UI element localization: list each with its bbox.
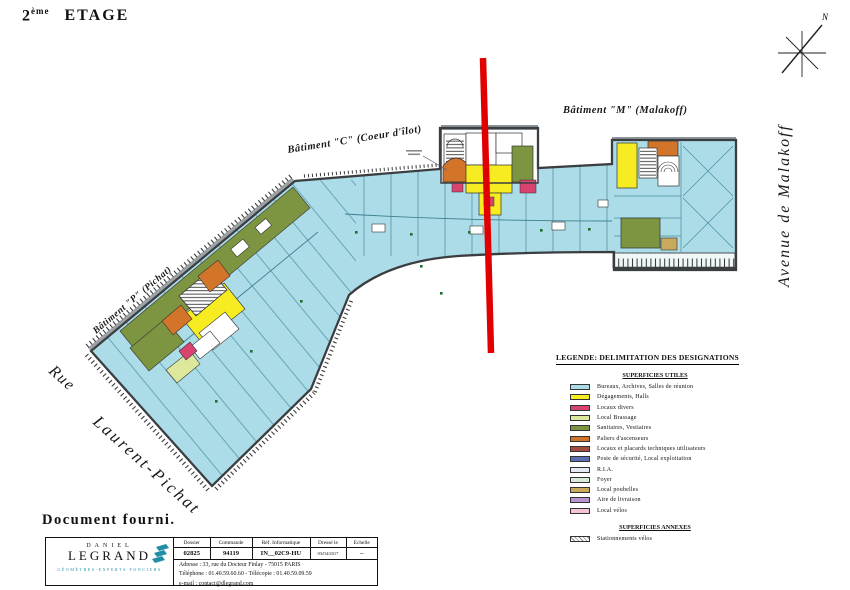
legend-item: Foyer — [570, 475, 796, 485]
legend-swatch — [570, 405, 590, 411]
legend-swatch — [570, 497, 590, 503]
legend-item: Poste de sécurité, Local exploitation — [570, 454, 796, 464]
legend-label: Stationnements vélos — [597, 536, 652, 542]
field-header: Dossier — [174, 538, 210, 548]
legend-swatch — [570, 487, 590, 493]
legend-swatch — [570, 436, 590, 442]
legend-section-annexes: SUPERFICIES ANNEXES — [590, 524, 720, 531]
field-value-commande: 94119 — [210, 548, 252, 560]
field-header: Echelle — [346, 538, 377, 548]
floorplan-page: { "title": {"num": "2", "sup": "ème", "r… — [0, 0, 850, 590]
legend-label: R.I.A. — [597, 467, 613, 473]
legend-swatch — [570, 446, 590, 452]
company-logo-icon — [150, 543, 170, 565]
legend-section-utiles: SUPERFICIES UTILES — [590, 372, 720, 379]
poubelles-m — [661, 238, 677, 250]
legend-item: Locaux divers — [570, 403, 796, 413]
legend-label: Locaux et placards techniques utilisateu… — [597, 446, 706, 452]
field-value-date: 03/04/2017 — [310, 548, 346, 560]
legend-label: Local vélos — [597, 508, 627, 514]
legend-label: Local poubelles — [597, 487, 638, 493]
legend-label: Paliers d'ascenseurs — [597, 436, 649, 442]
legend-items: Bureaux, Archives, Salles de réunionDéga… — [570, 382, 796, 516]
legend-swatch — [570, 384, 590, 390]
sanitaires-m — [621, 218, 660, 248]
company-address: Adresse : 33, rue du Docteur Finlay - 75… — [179, 561, 372, 570]
legend-item: Bureaux, Archives, Salles de réunion — [570, 382, 796, 392]
legend-item: Aire de livraison — [570, 495, 796, 505]
delimitation-red-line — [483, 58, 491, 353]
sanitaires-c — [512, 146, 533, 182]
legend-label: Sanitaires, Vestiaires — [597, 425, 651, 431]
hall-m — [617, 143, 637, 188]
compass-rose — [778, 25, 826, 77]
compass-north-label: N — [821, 12, 829, 22]
legend-item: R.I.A. — [570, 464, 796, 474]
company-email: e-mail : contact@dlegrand.com — [179, 580, 372, 589]
label-batiment-c: Bâtiment "C" (Coeur d'îlot) — [286, 124, 423, 156]
legend-swatch — [570, 508, 590, 514]
label-batiment-m: Bâtiment "M" (Malakoff) — [562, 105, 687, 116]
legend-swatch — [570, 394, 590, 400]
legend-swatch — [570, 415, 590, 421]
legend-item: Sanitaires, Vestiaires — [570, 423, 796, 433]
legend-item: Locaux et placards techniques utilisateu… — [570, 444, 796, 454]
title-block-info: Dossier Commande Réf. Informatique Dress… — [174, 538, 377, 585]
legend-label: Foyer — [597, 477, 612, 483]
legend-label: Local Brassage — [597, 415, 637, 421]
legend-item: Local vélos — [570, 506, 796, 516]
legend-title: LEGENDE: DELIMITATION DES DESIGNATIONS — [556, 353, 739, 365]
legend-item: Local Brassage — [570, 413, 796, 423]
title-block-table: Dossier Commande Réf. Informatique Dress… — [174, 538, 377, 560]
label-rue: Rue — [45, 362, 79, 395]
field-value-ref: IN__02C9-HU — [252, 548, 310, 560]
label-avenue-malakoff: Avenue de Malakoff — [776, 123, 793, 288]
legend-swatch — [570, 536, 590, 542]
legend-item: Local poubelles — [570, 485, 796, 495]
legend-label: Aire de livraison — [597, 497, 641, 503]
document-note: Document fourni. — [42, 512, 176, 529]
field-value-echelle: – — [346, 548, 377, 560]
legend-swatch — [570, 467, 590, 473]
legend-swatch — [570, 456, 590, 462]
legend-label: Dégagements, Halls — [597, 394, 649, 400]
legend-swatch — [570, 477, 590, 483]
legend-swatch — [570, 425, 590, 431]
company-phone: Téléphone : 01.40.59.60.60 - Télécopie :… — [179, 570, 372, 579]
legend-item: Paliers d'ascenseurs — [570, 433, 796, 443]
field-header: Réf. Informatique — [252, 538, 310, 548]
field-header: Dressé le — [310, 538, 346, 548]
company-tagline: GÉOMÈTRES-EXPERTS FONCIERS — [48, 567, 171, 572]
field-header: Commande — [210, 538, 252, 548]
legend-label: Poste de sécurité, Local exploitation — [597, 456, 692, 462]
company-logo-cell: DANIEL LEGRAND GÉOMÈTRES-EXPERTS FONCIER… — [46, 538, 174, 585]
legend: LEGENDE: DELIMITATION DES DESIGNATIONS S… — [556, 347, 796, 544]
legend-label: Locaux divers — [597, 405, 634, 411]
field-value-dossier: 02825 — [174, 548, 210, 560]
legend-annex-items: Stationnements vélos — [570, 534, 796, 544]
legend-label: Bureaux, Archives, Salles de réunion — [597, 384, 693, 390]
legend-item: Stationnements vélos — [570, 534, 796, 544]
legend-item: Dégagements, Halls — [570, 392, 796, 402]
title-block: DANIEL LEGRAND GÉOMÈTRES-EXPERTS FONCIER… — [45, 537, 378, 586]
